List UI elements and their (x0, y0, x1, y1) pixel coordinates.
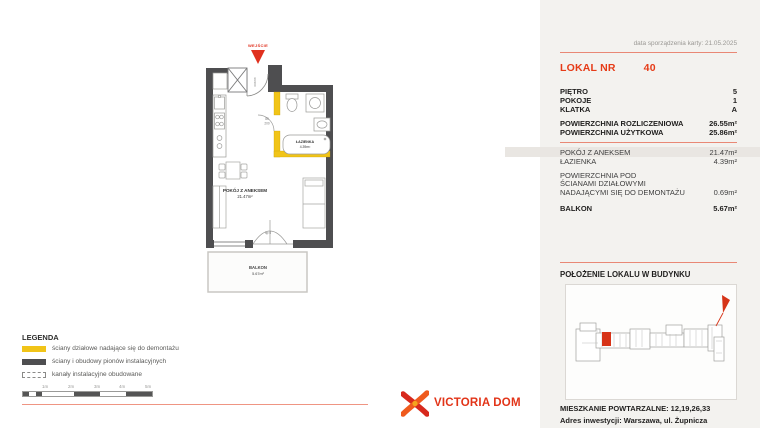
furniture (213, 162, 325, 228)
block-line: NADAJĄCYMI SIĘ DO DEMONTAŻU (560, 189, 685, 197)
row-value: 5 (733, 87, 737, 96)
victoria-dom-wordmark: VICTORIA DOM (434, 397, 521, 409)
legend-item: ściany i obudowy pionów instalacyjnych (22, 358, 166, 365)
victoria-dom-logo-icon (401, 390, 429, 418)
unit-number-value: 40 (644, 62, 656, 74)
building-footprint (566, 285, 736, 399)
unit-info-panel: METRO art 13 data sporządzenia karty: 21… (540, 0, 760, 428)
row-value: 1 (733, 96, 737, 105)
balcony-area: 5.67m² (252, 272, 265, 276)
bath-label: ŁAZIENKA (296, 140, 315, 144)
bath-door-dim-w: 80 (265, 117, 269, 121)
north-arrow-icon (716, 295, 730, 326)
demountable-area-block: POWIERZCHNIA POD ŚCIANAMI DZIAŁOWYMI NAD… (560, 172, 737, 197)
block-value: 0.69m² (714, 189, 737, 197)
unit-number-label: LOKAL NR (560, 62, 616, 74)
balcony-label: BALKON (249, 265, 267, 270)
legend-title: LEGENDA (22, 333, 59, 342)
row-value: 5.67m² (713, 204, 737, 213)
kitchen-units (213, 73, 227, 157)
balcony-door (253, 220, 293, 244)
scale-label: 4m (119, 384, 125, 389)
separator-line (560, 142, 737, 143)
card-date: data sporządzenia karty: 21.05.2025 (634, 40, 737, 47)
row-value: 25.86m² (709, 128, 737, 137)
bath-area: 4.39m² (300, 145, 311, 149)
row-value: 26.55m² (709, 119, 737, 128)
installation-shaft (228, 68, 247, 92)
separator-line (560, 52, 737, 53)
detail-row-usable-area: POWIERZCHNIA UŻYTKOWA 25.86m² (560, 128, 737, 137)
bath-door-dim-h: 200 (264, 122, 270, 126)
legend-item-label: kanały instalacyjne obudowane (52, 371, 142, 378)
row-label: ŁAZIENKA (560, 157, 596, 166)
balcony-row: BALKON 5.67m² (560, 204, 737, 213)
row-label: KLATKA (560, 105, 590, 114)
row-label: POWIERZCHNIA UŻYTKOWA (560, 128, 663, 137)
detail-row-floor: PIĘTRO 5 (560, 87, 737, 96)
floor-plan: WEJŚCIE hp 0 90/230 (190, 38, 350, 298)
address-line: Adres inwestycji: Warszawa, ul. Żupnicza (560, 416, 707, 425)
building-location-box (565, 284, 737, 400)
legend-item: kanały instalacyjne obudowane (22, 371, 142, 378)
scale-label: 1m (42, 384, 48, 389)
apartment-card-page: WEJŚCIE hp 0 90/230 (0, 0, 760, 428)
entrance-arrow-icon (251, 50, 265, 64)
window (214, 242, 245, 246)
separator-line (560, 262, 737, 263)
row-label: PIĘTRO (560, 87, 588, 96)
scale-bar (22, 391, 153, 397)
row-label: POKOJE (560, 96, 591, 105)
dashed-duct-swatch-icon (22, 372, 46, 378)
legend-item: ściany działowe nadające się do demontaż… (22, 345, 179, 352)
scale-label: 2m (68, 384, 74, 389)
legend-item-label: ściany i obudowy pionów instalacyjnych (52, 358, 166, 365)
unit-number-row: LOKAL NR 40 (560, 62, 656, 74)
dark-wall-swatch-icon (22, 359, 46, 365)
detail-row-billed-area: POWIERZCHNIA ROZLICZENIOWA 26.55m² (560, 119, 737, 128)
row-label: BALKON (560, 204, 592, 213)
room-label: POKÓJ Z ANEKSEM (223, 186, 267, 193)
sill-height-label: hp 0 (265, 231, 271, 235)
row-label: POKÓJ Z ANEKSEM (560, 148, 630, 157)
divider-line (22, 404, 368, 405)
entry-door-dim: 90/200 (253, 77, 257, 87)
scale-label: 3m (94, 384, 100, 389)
room-area: 21.47m² (237, 194, 253, 199)
detail-row-staircase: KLATKA A (560, 105, 737, 114)
detail-row-rooms: POKOJE 1 (560, 96, 737, 105)
yellow-wall-swatch-icon (22, 346, 46, 352)
row-value: 4.39m² (714, 157, 737, 166)
unit-location-marker (602, 332, 611, 346)
room-row-living: POKÓJ Z ANEKSEM 21.47m² (560, 148, 737, 157)
row-value: A (732, 105, 737, 114)
location-title: POŁOŻENIE LOKALU W BUDYNKU (560, 270, 690, 279)
repeat-units-line: MIESZKANIE POWTARZALNE: 12,19,26,33 (560, 404, 710, 413)
legend-item-label: ściany działowe nadające się do demontaż… (52, 345, 179, 352)
room-row-bathroom: ŁAZIENKA 4.39m² (560, 157, 737, 166)
scale-label: 5m (145, 384, 151, 389)
row-label: POWIERZCHNIA ROZLICZENIOWA (560, 119, 683, 128)
entrance-label: WEJŚCIE (248, 43, 268, 48)
row-value: 21.47m² (709, 148, 737, 157)
